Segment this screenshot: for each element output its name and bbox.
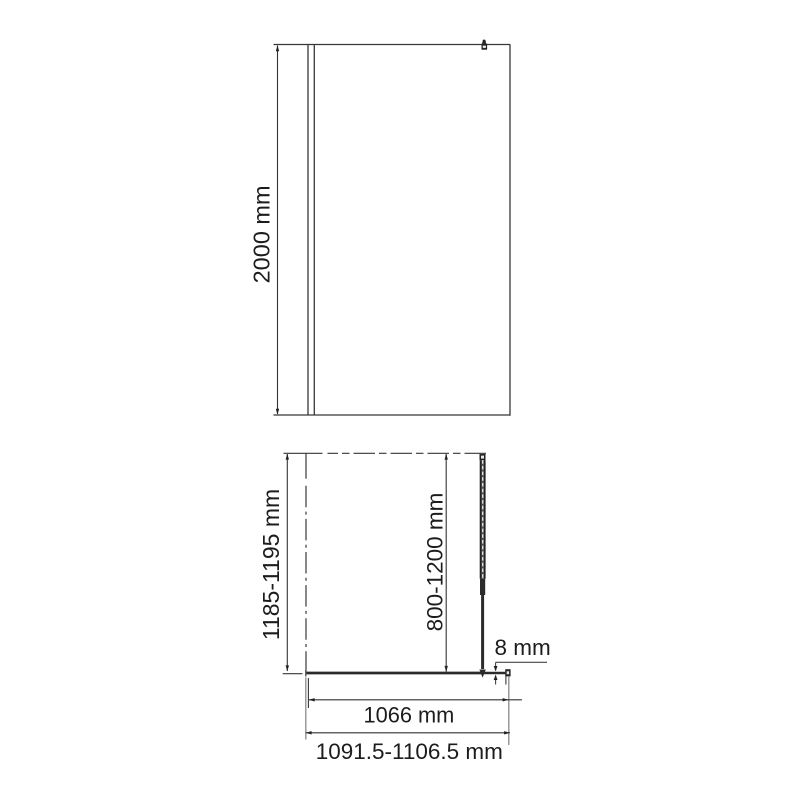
svg-text:8 mm: 8 mm bbox=[495, 635, 551, 660]
svg-text:1066 mm: 1066 mm bbox=[363, 702, 454, 727]
svg-text:1185-1195 mm: 1185-1195 mm bbox=[258, 489, 284, 640]
svg-text:1091.5-1106.5 mm: 1091.5-1106.5 mm bbox=[316, 739, 503, 764]
svg-text:800-1200 mm: 800-1200 mm bbox=[422, 493, 447, 632]
svg-text:2000 mm: 2000 mm bbox=[249, 185, 275, 283]
